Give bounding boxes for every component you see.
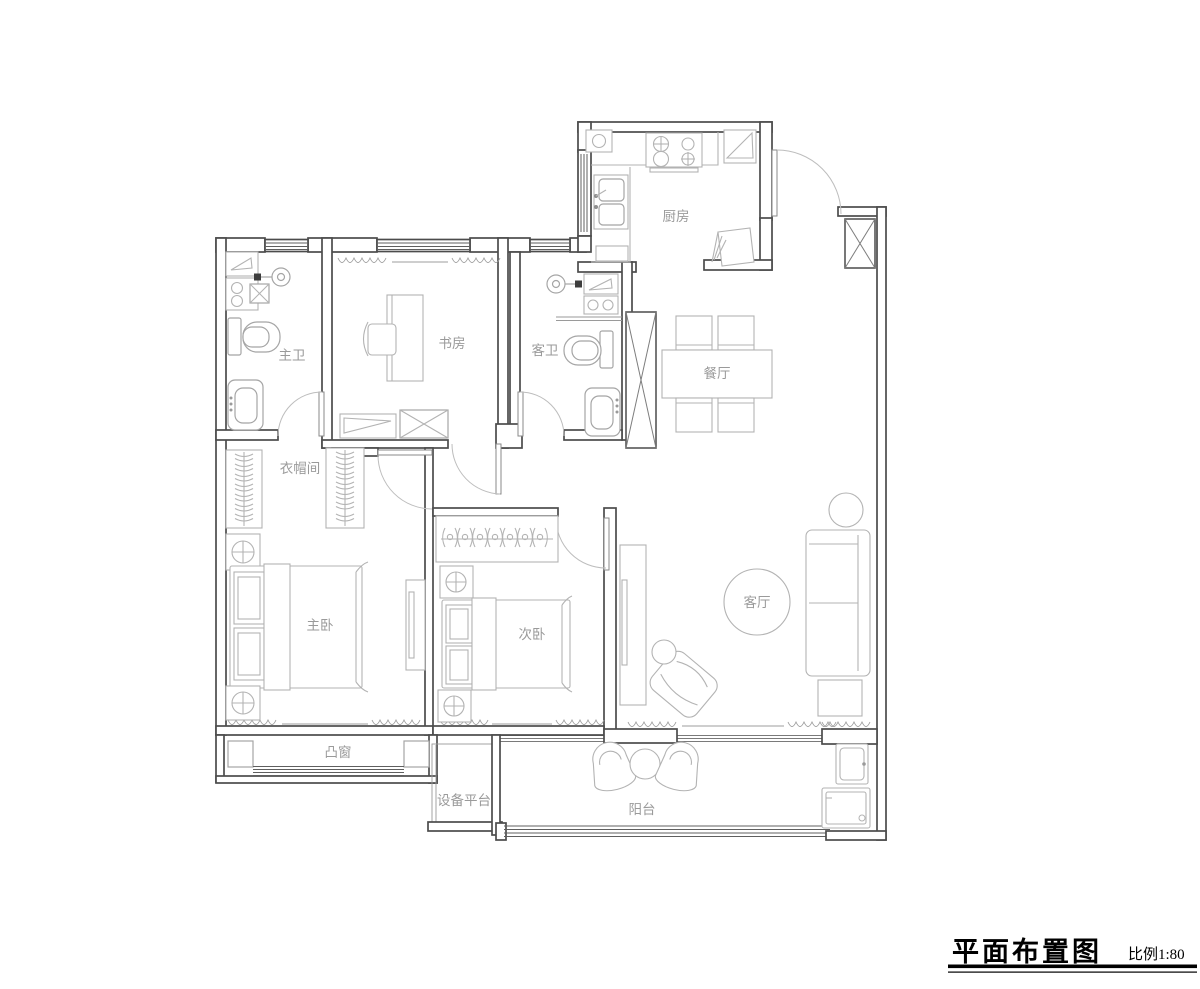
nightstand: [226, 534, 260, 570]
nightstand: [438, 690, 471, 722]
room-label-bay-window: 凸窗: [325, 744, 352, 760]
nightstand: [226, 686, 260, 720]
living-balcony-window: [500, 736, 877, 742]
room-label-cloak: 衣帽间: [280, 461, 321, 476]
room-living: 客厅: [620, 493, 870, 721]
floor-plan-canvas: 主卫 书房: [0, 0, 1200, 984]
wardrobe-hanging: [436, 516, 558, 562]
wardrobe: [226, 450, 262, 528]
shower-head: [254, 268, 290, 286]
kitchen-corner-cabinet: [586, 130, 612, 152]
round-side-table: [652, 640, 676, 664]
balcony-chair: [653, 738, 705, 795]
kitchen-low-cabinet: [596, 246, 628, 261]
room-label-study: 书房: [439, 336, 466, 351]
shaft-column-entry: [845, 219, 875, 268]
room-kitchen: 厨房: [586, 130, 756, 266]
title-rule-thick: [948, 965, 1197, 969]
toilet-2: [564, 331, 613, 368]
title-rule-thin: [948, 972, 1197, 973]
washbasin: [228, 380, 263, 430]
mirror-cabinet: [226, 252, 258, 276]
study-door: [452, 444, 501, 494]
walls: [216, 122, 886, 840]
master-suite-door: [378, 450, 432, 509]
drawing-scale: 比例1:80: [1128, 946, 1185, 963]
floor-plan-page: 主卫 书房: [0, 0, 1200, 984]
window-kitchen: [578, 150, 591, 236]
study-cabinet-2: [400, 410, 448, 438]
second-bedroom-door: [556, 518, 609, 570]
sofa-side-table: [818, 680, 862, 716]
dining-chair: [676, 316, 712, 350]
room-label-second-bedroom: 次卧: [519, 627, 546, 642]
tv-cabinet-living: [620, 545, 646, 705]
window-study: [377, 240, 470, 252]
wardrobe: [326, 448, 364, 528]
bed-master: [230, 562, 368, 692]
window-guest-bath: [530, 240, 570, 252]
stove: [646, 133, 702, 172]
dining-chair: [676, 398, 712, 432]
room-label-living: 客厅: [744, 594, 771, 610]
toilet: [228, 318, 280, 355]
room-label-dining: 餐厅: [704, 366, 731, 381]
room-label-equipment-platform: 设备平台: [437, 792, 491, 808]
tv-cabinet-master: [406, 580, 425, 670]
room-dining: 餐厅: [662, 316, 772, 432]
master-bath-door: [278, 392, 324, 436]
guest-bath-door: [518, 392, 564, 436]
room-label-kitchen: 厨房: [663, 209, 690, 224]
room-label-master-bath: 主卫: [279, 348, 306, 363]
dining-chair: [718, 398, 754, 432]
shaft-column-dining: [626, 312, 656, 448]
entry-door: [772, 150, 841, 216]
bed-second: [442, 596, 572, 692]
dining-chair: [718, 316, 754, 350]
washing-machine: [822, 788, 870, 828]
room-second-bedroom: 次卧: [436, 516, 572, 722]
mirror-cabinet-2: [584, 274, 618, 314]
plant: [829, 493, 863, 527]
balcony-sink: [836, 744, 868, 784]
room-master-bath: 主卫: [226, 252, 306, 430]
shower-head-2: [547, 275, 582, 293]
equipment-platform-structure: [428, 744, 502, 831]
room-study: 书房: [340, 295, 466, 438]
bath-counter: [226, 278, 269, 310]
room-balcony: 阳台: [585, 738, 870, 828]
desk-chair: [364, 322, 397, 356]
sofa: [806, 530, 870, 676]
fridge: [724, 130, 756, 163]
study-cabinet: [340, 414, 396, 438]
room-guest-bath: 客卫: [532, 274, 623, 436]
room-label-guest-bath: 客卫: [532, 342, 559, 358]
room-master-bedroom: 主卧: [226, 534, 425, 720]
nightstand: [440, 566, 473, 598]
room-label-balcony: 阳台: [629, 802, 656, 817]
window-master-bath: [265, 240, 308, 252]
title-block: 平面布置图 比例1:80: [948, 937, 1197, 973]
room-label-master-bedroom: 主卧: [307, 618, 334, 633]
kitchen-sink: [594, 175, 628, 229]
room-cloak: 衣帽间: [226, 448, 364, 528]
drawing-title: 平面布置图: [952, 937, 1102, 967]
washbasin-2: [585, 388, 620, 436]
